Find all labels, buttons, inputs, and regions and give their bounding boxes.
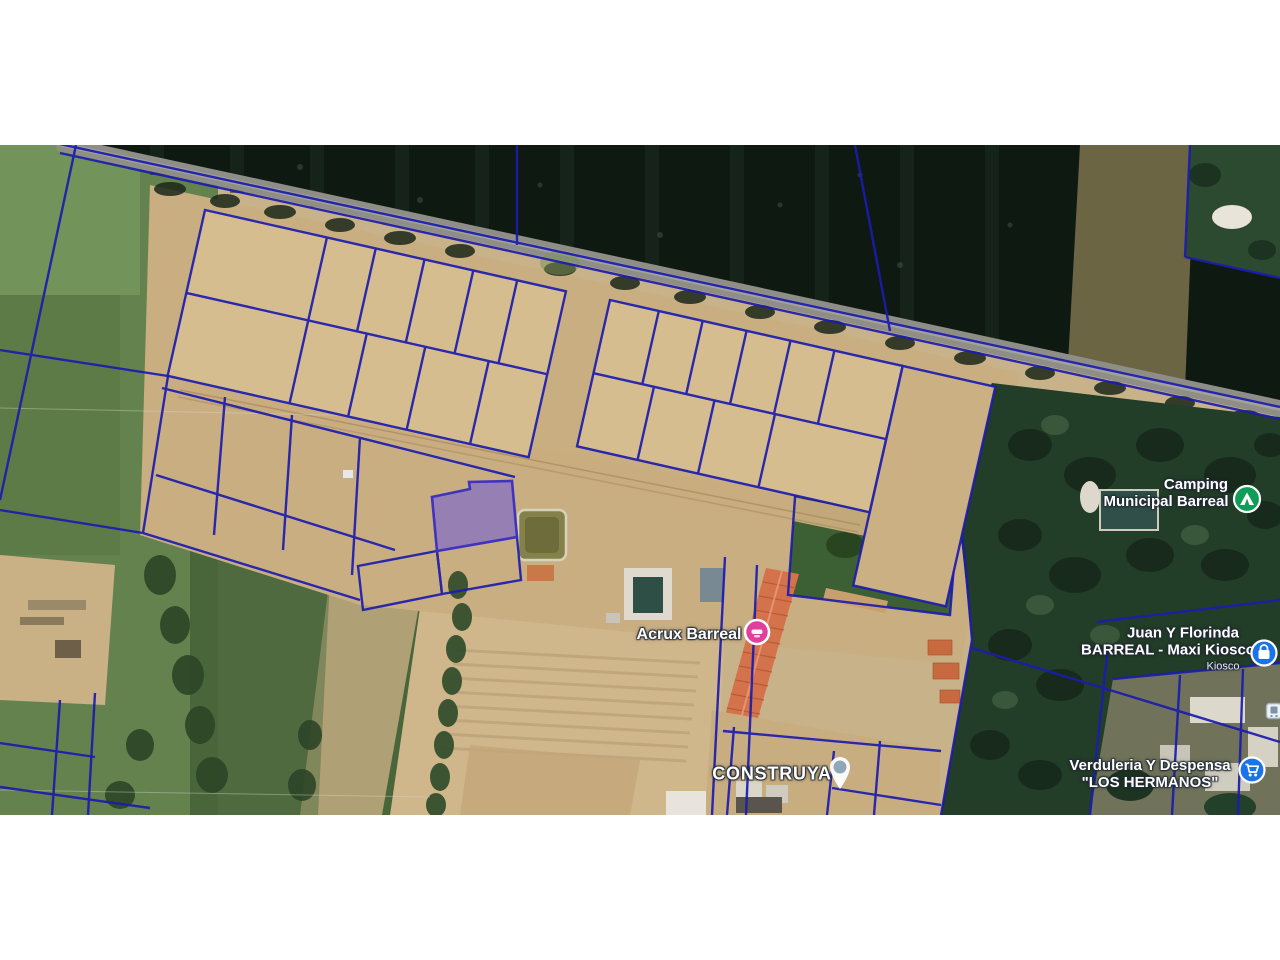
shop-bag-icon[interactable]: [1248, 637, 1280, 669]
satellite-map[interactable]: Camping Municipal Barreal Acrux Barreal …: [0, 145, 1280, 815]
map-pin-icon[interactable]: [826, 755, 854, 793]
poi-label-maxi-kiosco[interactable]: Juan Y Florinda BARREAL - Maxi Kiosco Ki…: [1081, 624, 1255, 672]
building-grey: [700, 568, 724, 602]
poi-camping-line2: Municipal Barreal: [1103, 493, 1228, 510]
transit-stop-icon[interactable]: [1265, 702, 1280, 720]
screenshot-canvas: Camping Municipal Barreal Acrux Barreal …: [0, 0, 1280, 960]
pink-circle-marker[interactable]: [741, 616, 773, 648]
reservoir: [518, 510, 566, 560]
poi-label-verduleria[interactable]: Verduleria Y Despensa "LOS HERMANOS": [1069, 757, 1230, 792]
tent-icon[interactable]: [1231, 483, 1263, 515]
map-graphics: [0, 145, 1280, 815]
swimming-pool: [633, 577, 663, 613]
poi-label-acrux-barreal[interactable]: Acrux Barreal: [637, 626, 742, 644]
building-white: [666, 791, 706, 815]
poi-sublabel-kiosco: Kiosco: [1191, 660, 1255, 672]
forest-clearing: [1068, 145, 1195, 390]
poi-label-camping[interactable]: Camping Municipal Barreal: [1163, 476, 1228, 511]
poi-label-construya[interactable]: CONSTRUYA: [712, 764, 832, 785]
shopping-cart-icon[interactable]: [1236, 754, 1268, 786]
shed-orange: [527, 565, 554, 581]
poi-camping-line1: Camping: [1163, 476, 1228, 493]
